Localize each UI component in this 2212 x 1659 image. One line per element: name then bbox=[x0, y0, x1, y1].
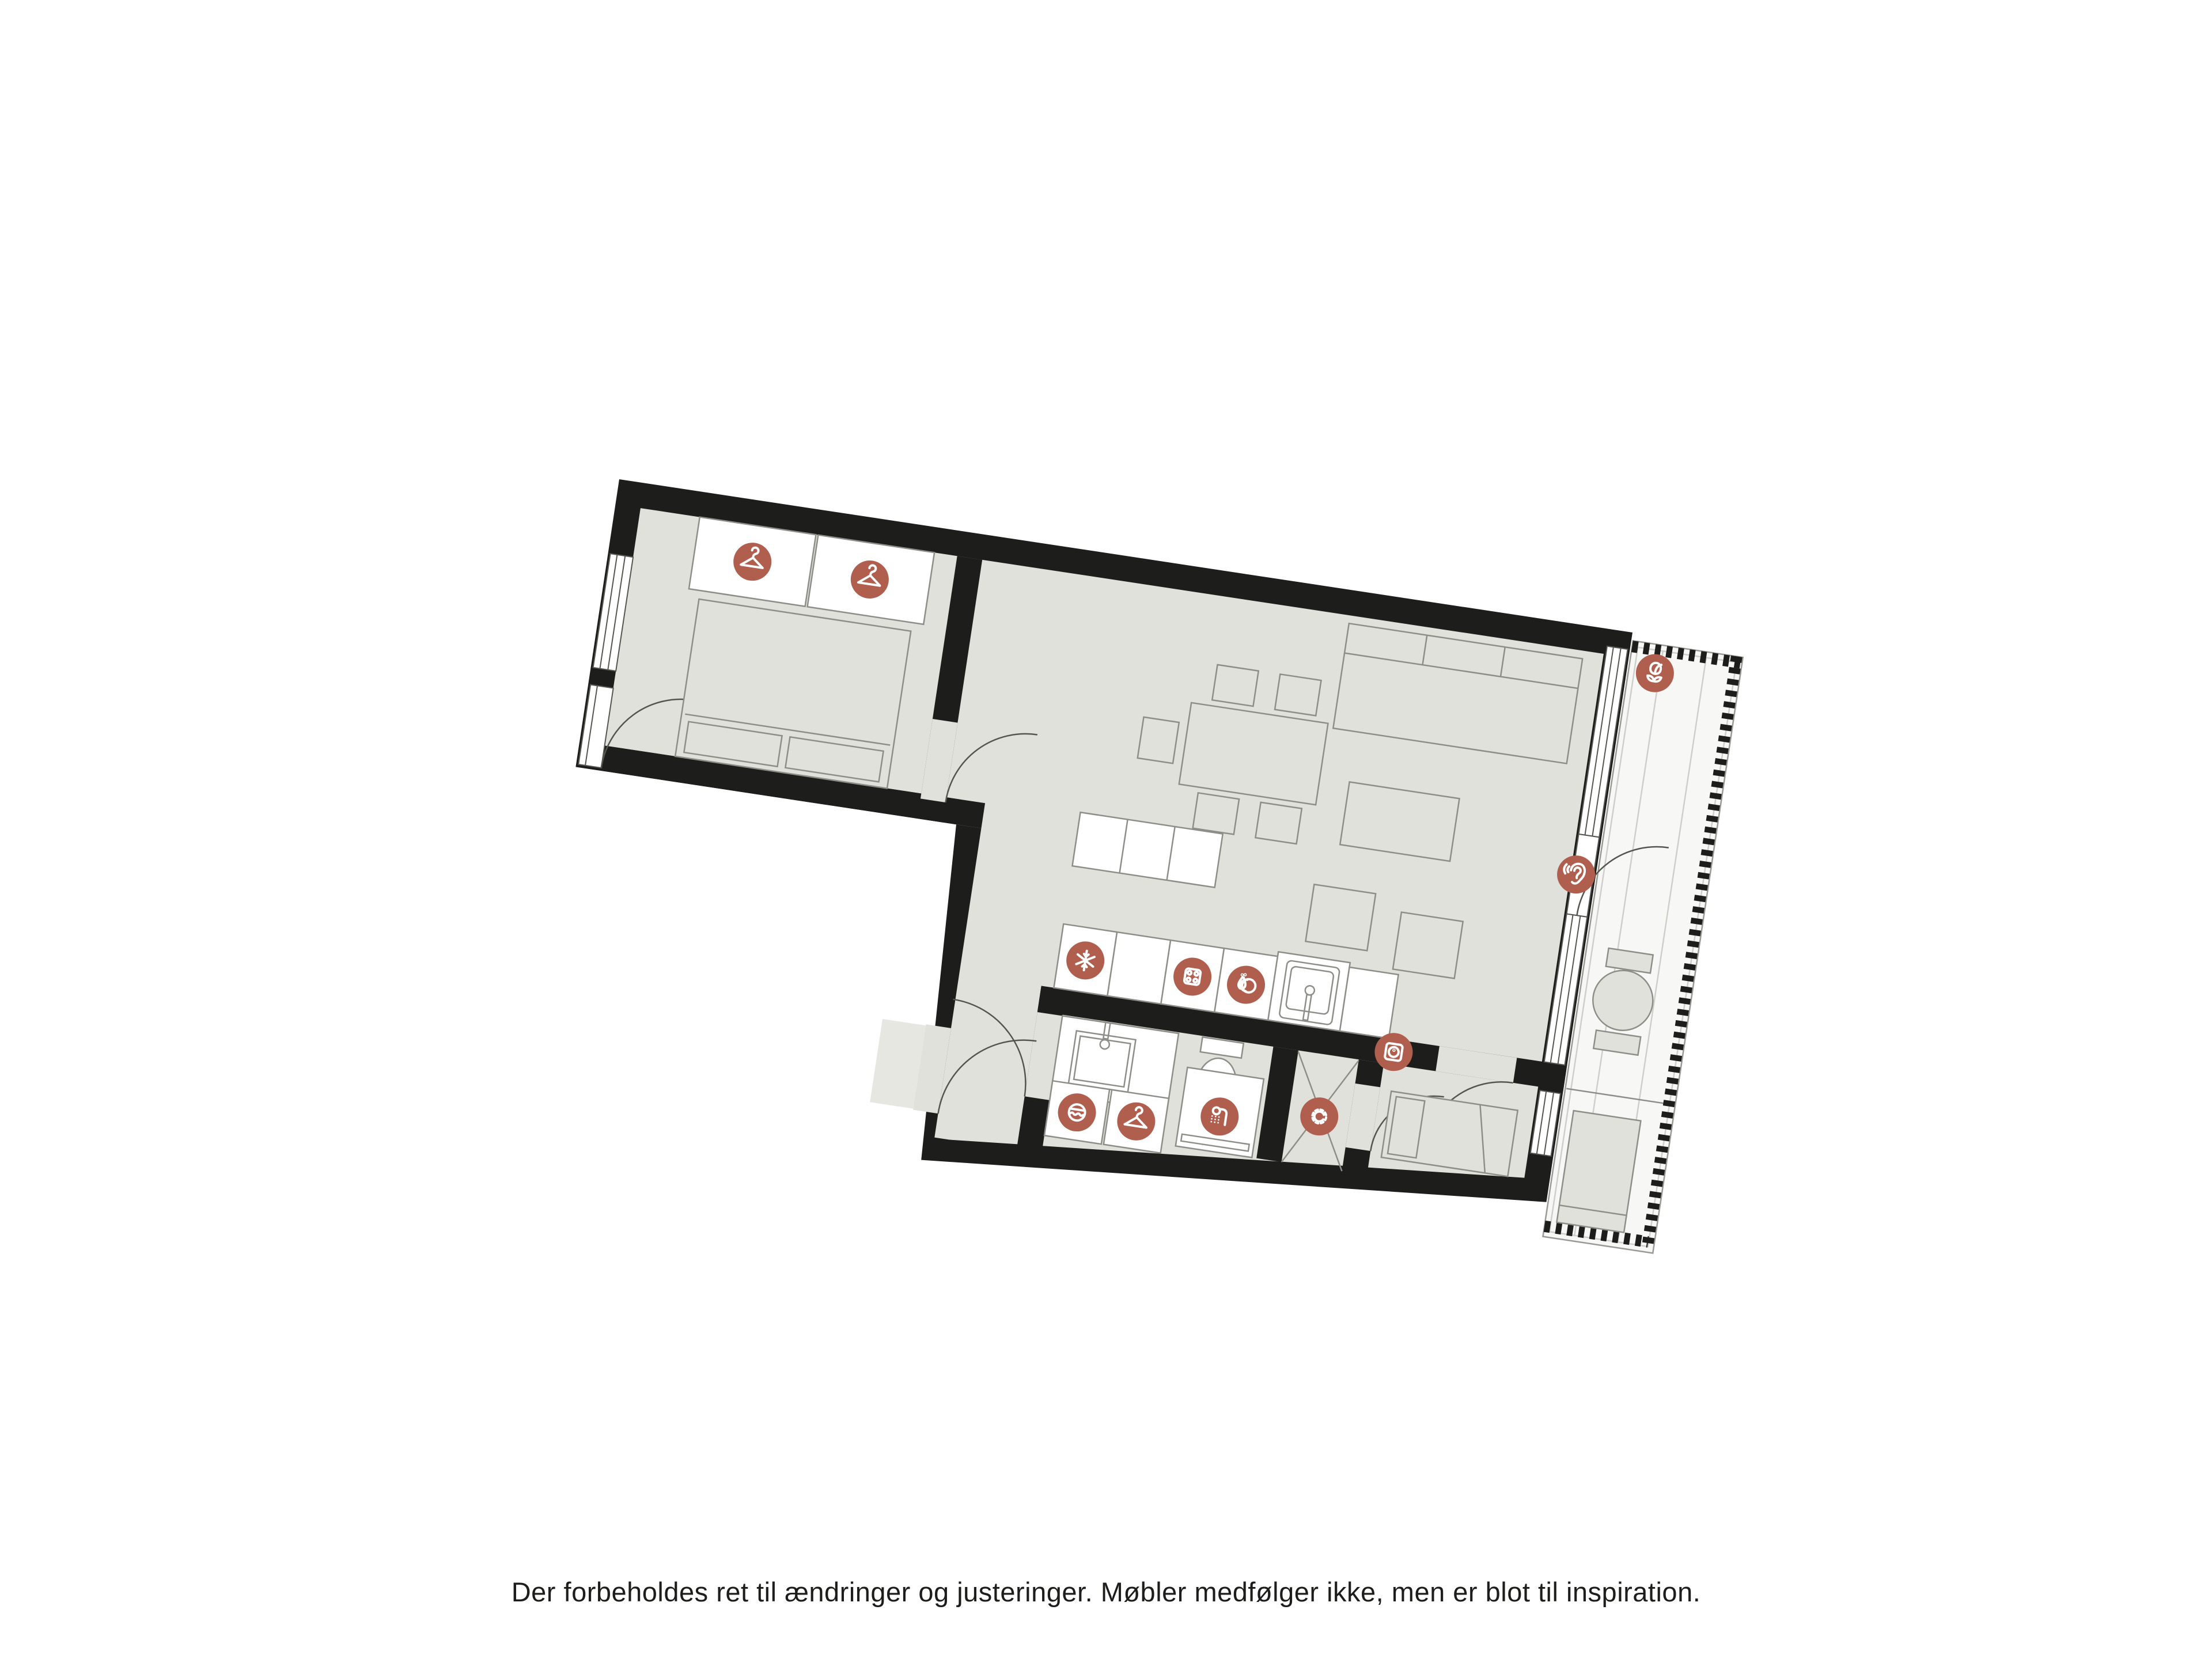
floor-plan bbox=[0, 0, 2212, 1659]
dining-chair bbox=[1275, 674, 1321, 715]
dining-chair bbox=[1193, 793, 1239, 834]
dining-chair bbox=[1255, 802, 1301, 844]
plan-rotated-group bbox=[525, 479, 1744, 1270]
pouf bbox=[1393, 912, 1463, 979]
dining-chair bbox=[1138, 717, 1179, 763]
dining-chair bbox=[1212, 665, 1258, 706]
disclaimer-caption: Der forbeholdes ret til ændringer og jus… bbox=[0, 1576, 2212, 1608]
cabinet-unit bbox=[1107, 932, 1171, 1004]
pouf bbox=[1305, 884, 1376, 950]
cabinet-unit bbox=[1340, 967, 1399, 1039]
